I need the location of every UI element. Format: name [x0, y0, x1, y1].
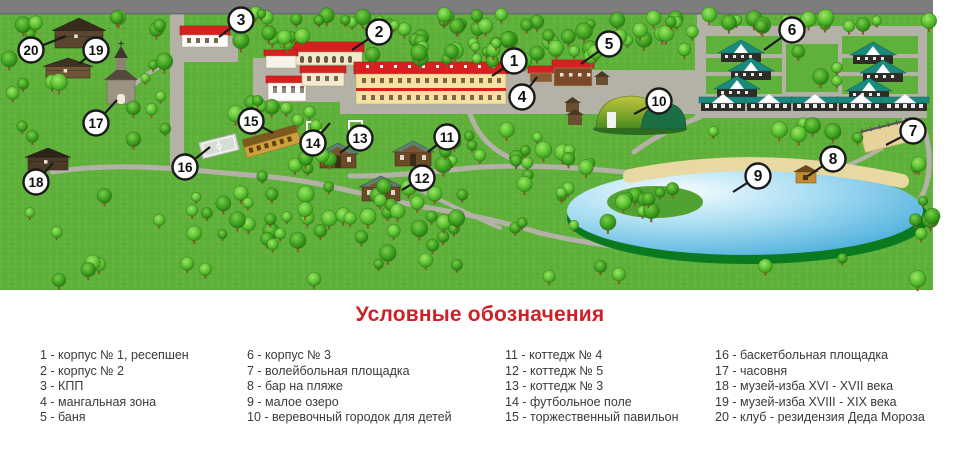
legend-item-3: 3 - КПП [40, 379, 189, 395]
svg-text:17: 17 [88, 116, 103, 131]
svg-text:4: 4 [518, 89, 527, 106]
svg-text:14: 14 [305, 136, 321, 151]
legend-item-14: 14 - футбольное поле [505, 395, 679, 411]
svg-text:6: 6 [788, 22, 797, 39]
legend-column-1: 1 - корпус № 1, ресепшен2 - корпус № 23 … [40, 348, 189, 426]
svg-text:16: 16 [177, 160, 193, 175]
resort-map-page: 1234567891011121314151617181920 Условные… [0, 0, 960, 453]
svg-text:9: 9 [754, 168, 763, 185]
svg-text:12: 12 [414, 171, 429, 186]
svg-text:19: 19 [88, 43, 103, 58]
legend-item-15: 15 - торжественный павильон [505, 410, 679, 426]
legend-item-2: 2 - корпус № 2 [40, 364, 189, 380]
legend-item-17: 17 - часовня [715, 364, 925, 380]
svg-text:2: 2 [375, 24, 384, 41]
legend-item-11: 11 - коттедж № 4 [505, 348, 679, 364]
legend-item-12: 12 - коттедж № 5 [505, 364, 679, 380]
legend-item-8: 8 - бар на пляже [247, 379, 452, 395]
resort-map: 1234567891011121314151617181920 [0, 0, 960, 300]
svg-text:3: 3 [237, 12, 246, 29]
building-mangal-zone [528, 66, 554, 82]
legend-title: Условные обозначения [0, 303, 960, 327]
building-banya [552, 60, 594, 86]
svg-text:20: 20 [23, 43, 38, 58]
legend-item-5: 5 - баня [40, 410, 189, 426]
svg-text:8: 8 [829, 151, 838, 168]
svg-text:5: 5 [605, 36, 614, 53]
legend-item-7: 7 - волейбольная площадка [247, 364, 452, 380]
building-cream-annex [300, 66, 346, 86]
legend-item-1: 1 - корпус № 1, ресепшен [40, 348, 189, 364]
legend-item-6: 6 - корпус № 3 [247, 348, 452, 364]
svg-text:15: 15 [243, 114, 259, 129]
building-korpus-1 [354, 62, 508, 104]
legend-item-18: 18 - музей-изба XVI - XVII века [715, 379, 925, 395]
legend-column-2: 6 - корпус № 37 - волейбольная площадка8… [247, 348, 452, 426]
legend-item-10: 10 - веревочный городок для детей [247, 410, 452, 426]
legend-item-13: 13 - коттедж № 3 [505, 379, 679, 395]
legend-item-4: 4 - мангальная зона [40, 395, 189, 411]
legend-item-9: 9 - малое озеро [247, 395, 452, 411]
legend-column-4: 16 - баскетбольная площадка17 - часовня1… [715, 348, 925, 426]
building-white-annex [266, 76, 308, 101]
svg-text:13: 13 [352, 131, 368, 146]
svg-text:11: 11 [440, 130, 455, 145]
building-kpp [180, 26, 230, 47]
svg-text:18: 18 [28, 175, 44, 190]
legend-item-16: 16 - баскетбольная площадка [715, 348, 925, 364]
svg-text:10: 10 [651, 94, 666, 109]
svg-text:1: 1 [510, 53, 519, 70]
svg-text:7: 7 [909, 123, 918, 140]
legend-item-20: 20 - клуб - резидензия Деда Мороза [715, 410, 925, 426]
legend-column-3: 11 - коттедж № 412 - коттедж № 513 - кот… [505, 348, 679, 426]
legend-item-19: 19 - музей-изба XVIII - XIX века [715, 395, 925, 411]
